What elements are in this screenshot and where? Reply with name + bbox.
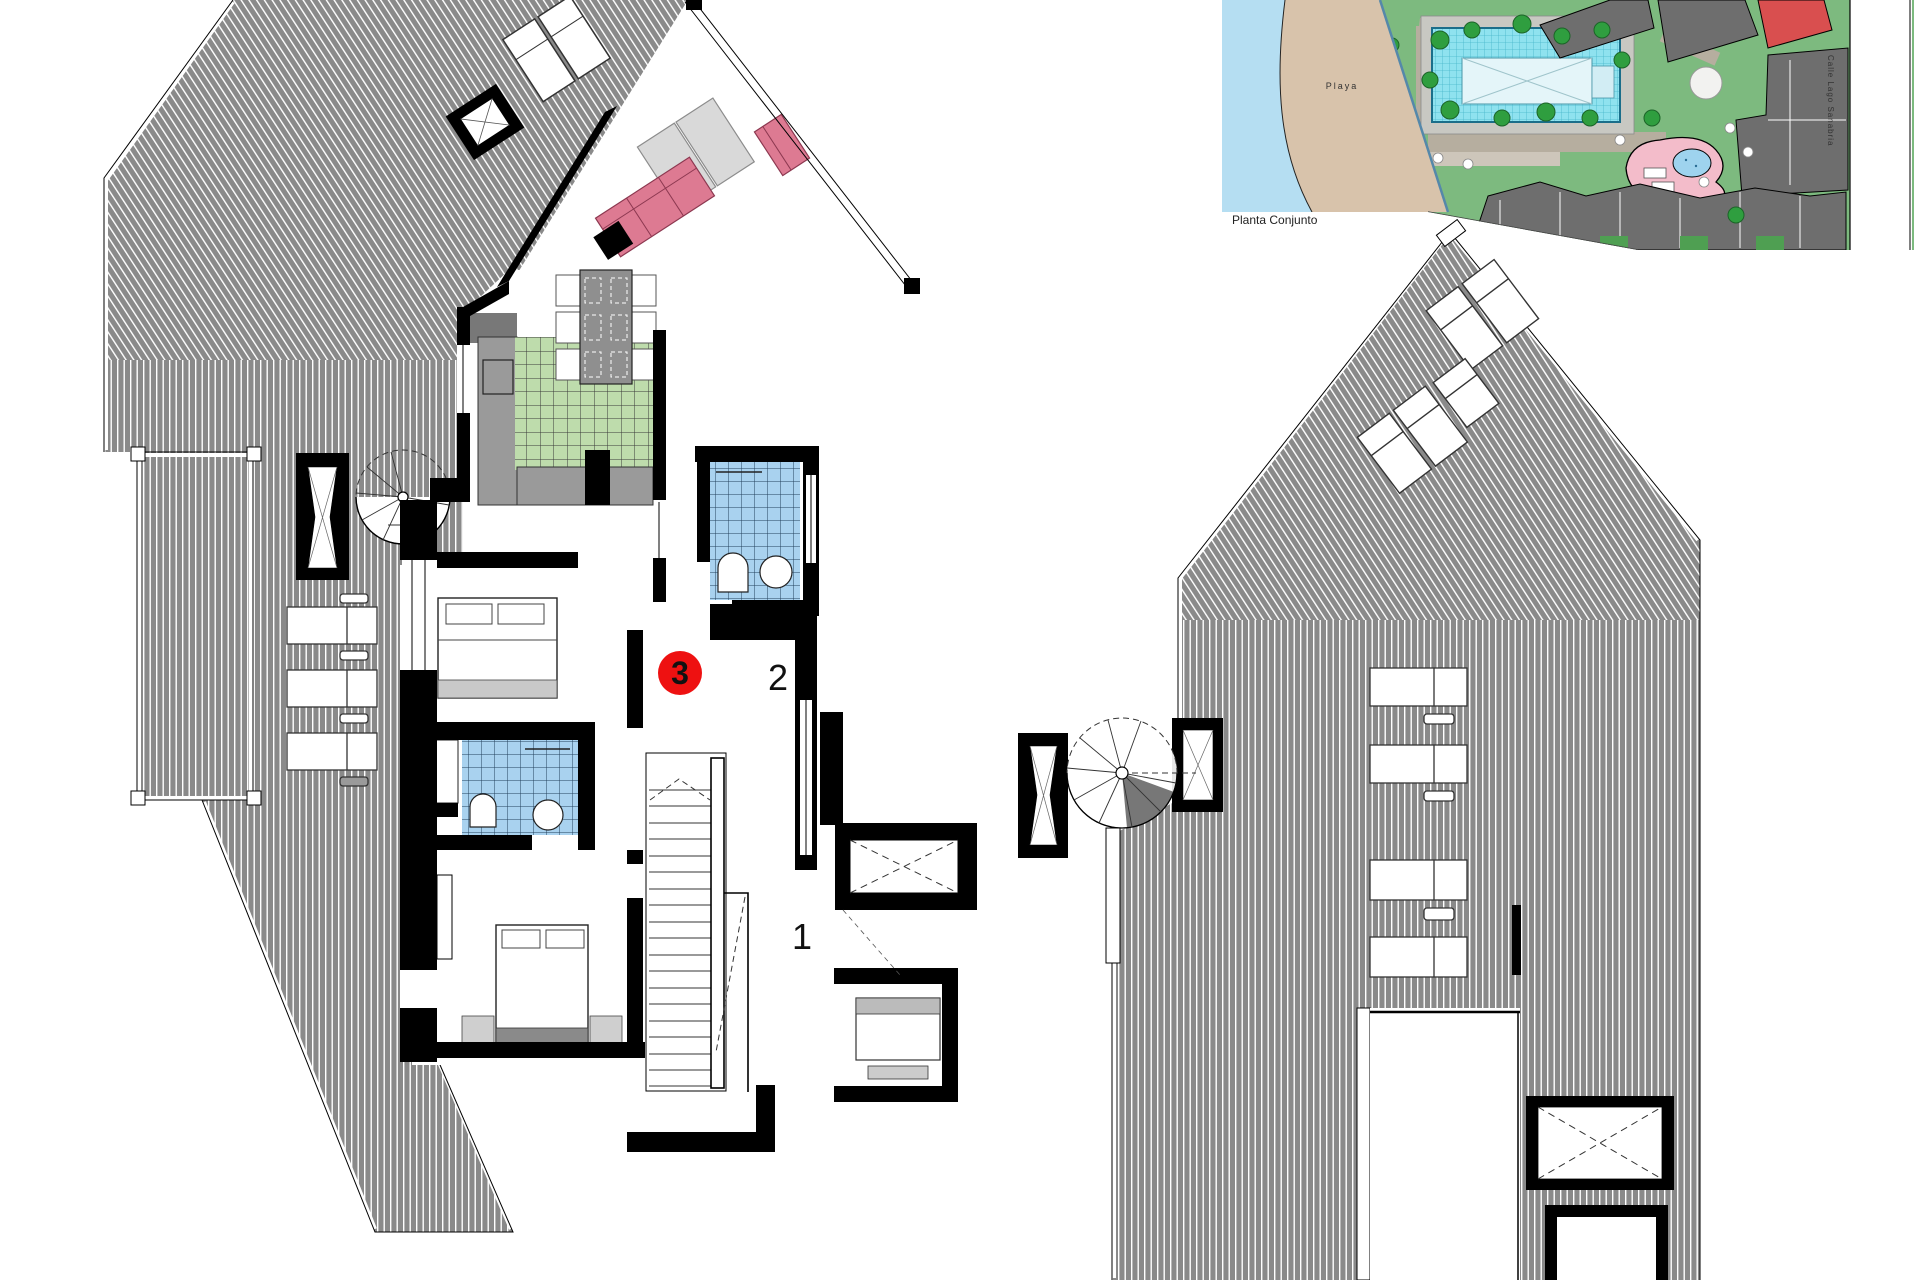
terrace-loungers-left	[287, 594, 377, 786]
roof-planter-left	[1018, 733, 1068, 858]
main-floor-plan	[104, 0, 977, 1232]
dining-set	[556, 270, 656, 384]
site-plan	[1222, 0, 1914, 250]
site-road	[1850, 0, 1912, 250]
floor-plan-sheet: 3 2 1 Planta Conjunto Playa Calle Lago S…	[0, 0, 1920, 1280]
street-name-label: Calle Lago Sanabria	[1826, 55, 1835, 147]
beach-label: Playa	[1326, 81, 1359, 91]
unit-number-badge[interactable]: 3	[658, 651, 702, 695]
terrace-planter-box	[296, 453, 349, 580]
plan-drawing	[0, 0, 1920, 1280]
roof-planter-right	[1172, 718, 1223, 812]
roof-terrace-plan	[1018, 220, 1700, 1280]
room-label-1: 1	[792, 916, 812, 958]
site-plan-caption: Planta Conjunto	[1232, 213, 1317, 227]
room-label-2: 2	[768, 657, 788, 699]
site-plaza	[1690, 67, 1722, 99]
bathroom-1	[710, 462, 800, 600]
closet-box	[850, 840, 958, 893]
utility-room	[843, 910, 940, 1079]
unit-number: 3	[671, 655, 689, 692]
